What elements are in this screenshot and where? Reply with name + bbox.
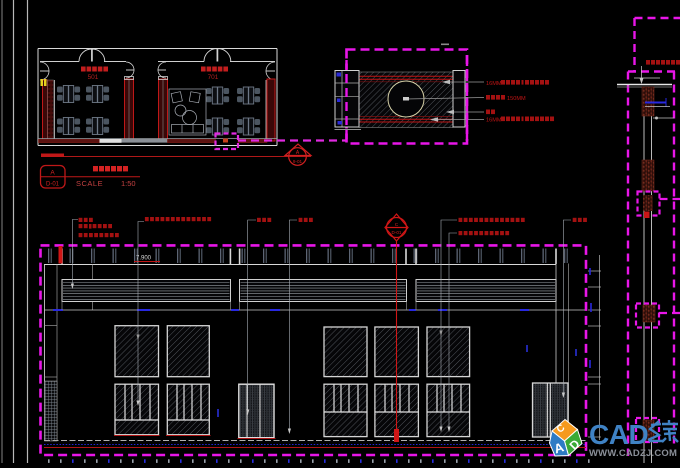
svg-text:CAD: CAD (589, 419, 648, 450)
svg-text:WWW.CADZJ.COM: WWW.CADZJ.COM (589, 448, 677, 459)
svg-text:D-01: D-01 (46, 182, 60, 188)
svg-text:SCALE: SCALE (76, 179, 103, 188)
svg-text:16MM: 16MM (486, 118, 502, 124)
svg-text:501: 501 (88, 74, 99, 81)
svg-text:7.900: 7.900 (136, 256, 152, 262)
svg-text:16MM: 16MM (486, 81, 502, 87)
svg-text:1:50: 1:50 (121, 179, 136, 188)
svg-text:A: A (50, 170, 55, 177)
svg-text:150MM: 150MM (507, 96, 526, 102)
svg-text:701: 701 (208, 74, 219, 81)
svg-text:D-01: D-01 (392, 230, 402, 235)
svg-text:C: C (395, 222, 399, 228)
svg-text:9-01: 9-01 (293, 159, 303, 164)
